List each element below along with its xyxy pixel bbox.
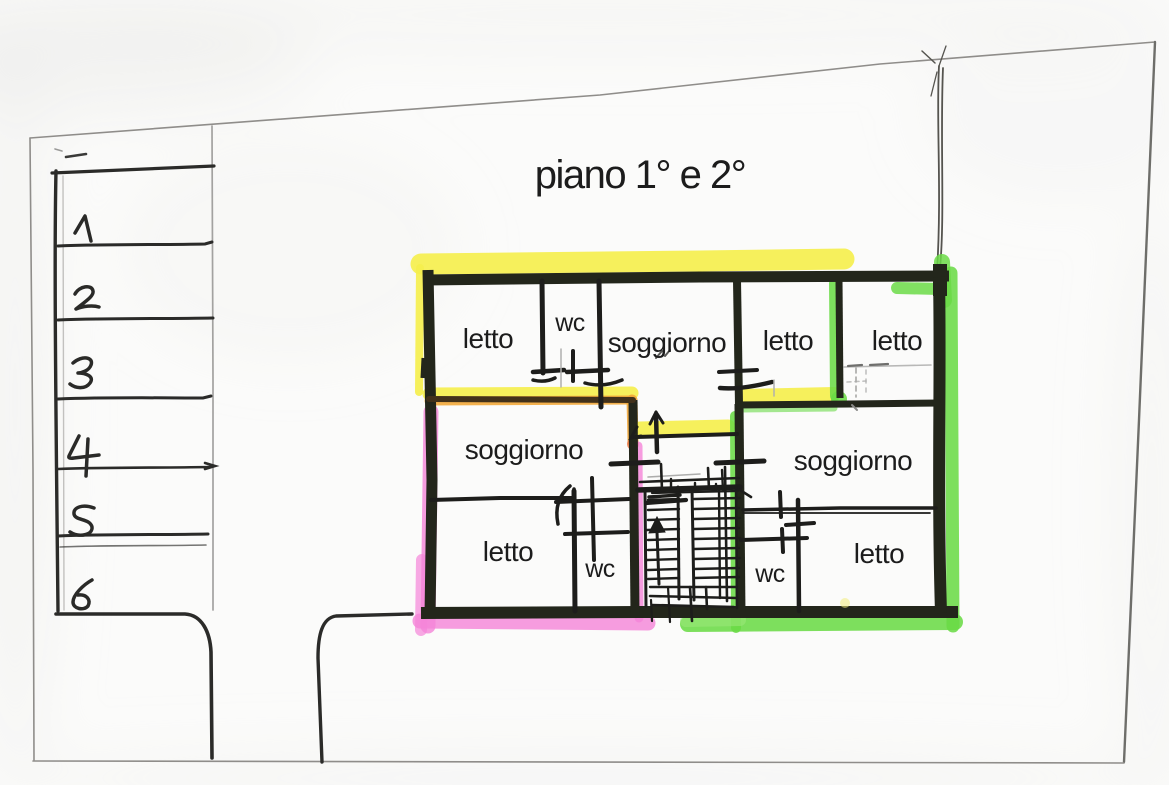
svg-text:letto: letto bbox=[483, 536, 533, 567]
svg-text:wc: wc bbox=[754, 560, 785, 588]
svg-text:letto: letto bbox=[763, 325, 813, 356]
svg-text:letto: letto bbox=[854, 538, 904, 569]
svg-text:soggiorno: soggiorno bbox=[794, 445, 912, 476]
svg-text:soggiorno: soggiorno bbox=[608, 327, 726, 358]
svg-text:wc: wc bbox=[584, 555, 615, 583]
svg-text:letto: letto bbox=[872, 325, 922, 356]
svg-text:piano 1° e 2°: piano 1° e 2° bbox=[535, 153, 745, 197]
svg-text:letto: letto bbox=[463, 323, 513, 354]
svg-text:wc: wc bbox=[554, 309, 585, 337]
svg-text:soggiorno: soggiorno bbox=[465, 434, 583, 465]
